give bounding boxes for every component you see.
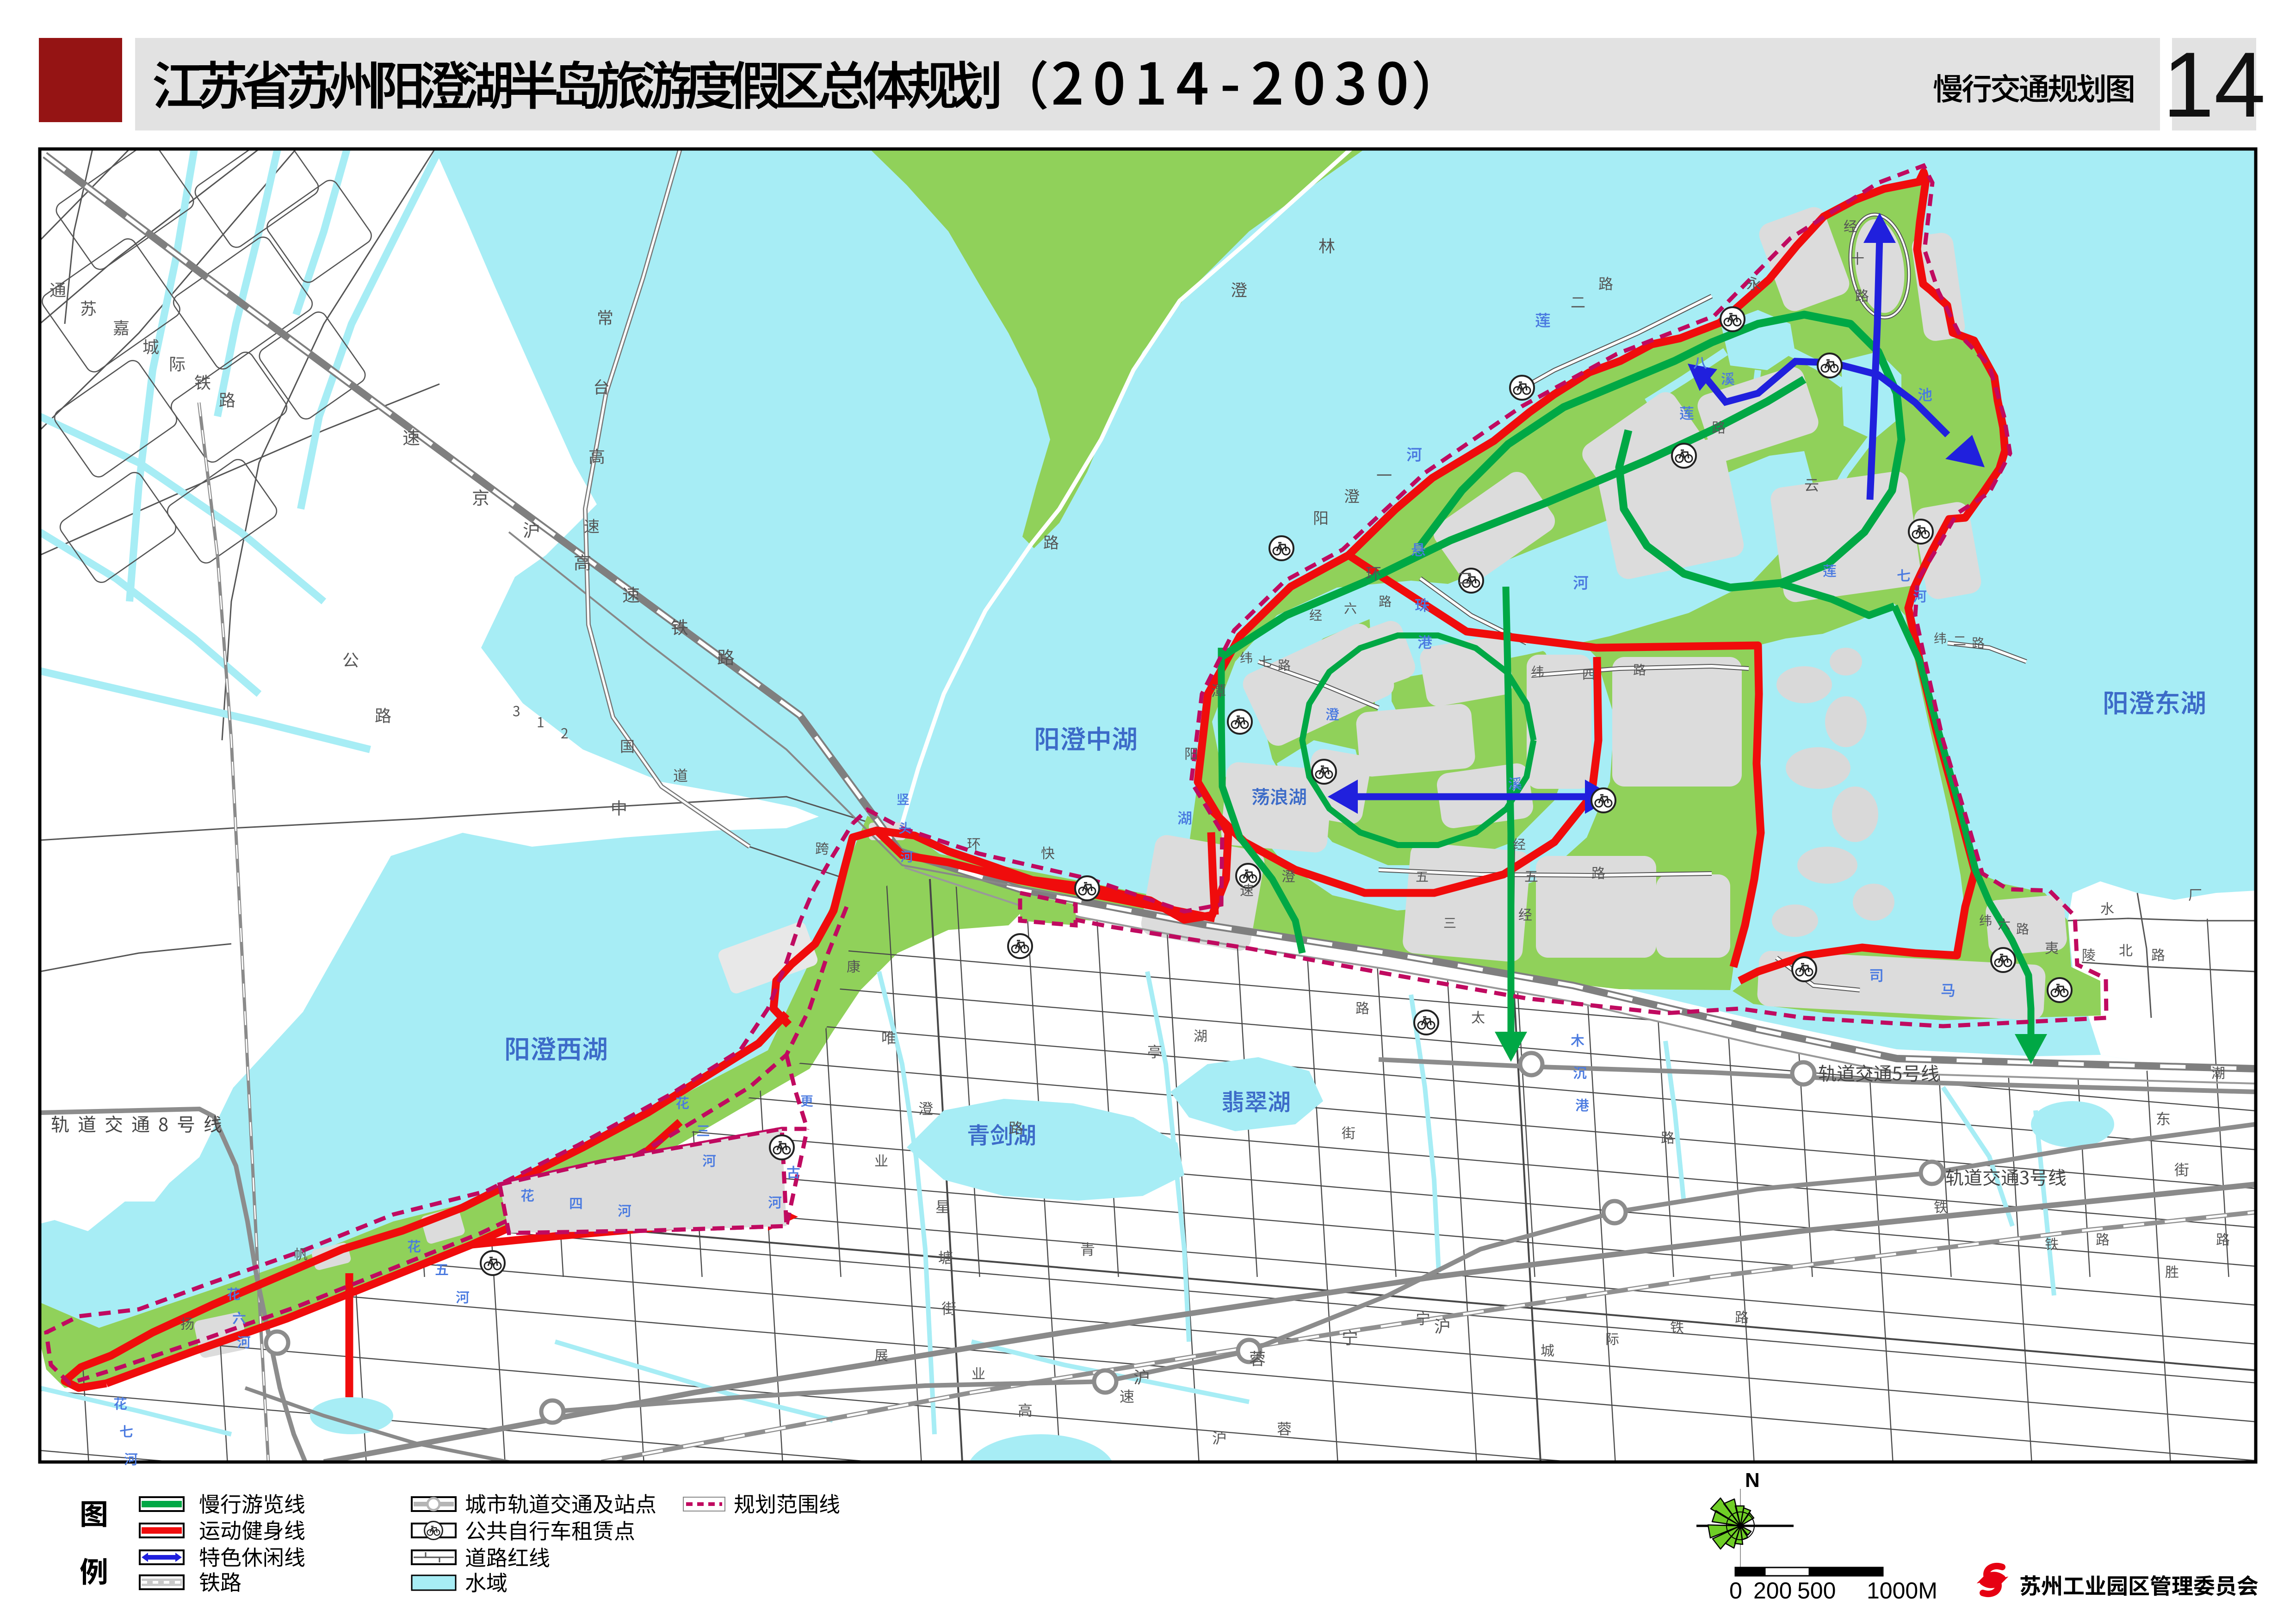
svg-text:0: 0	[1729, 1578, 1742, 1604]
svg-text:N: N	[1745, 1469, 1760, 1492]
svg-text:1000M: 1000M	[1867, 1578, 1937, 1604]
svg-text:14: 14	[2163, 33, 2265, 136]
svg-text:500: 500	[1797, 1578, 1836, 1604]
svg-text:200: 200	[1753, 1578, 1792, 1604]
